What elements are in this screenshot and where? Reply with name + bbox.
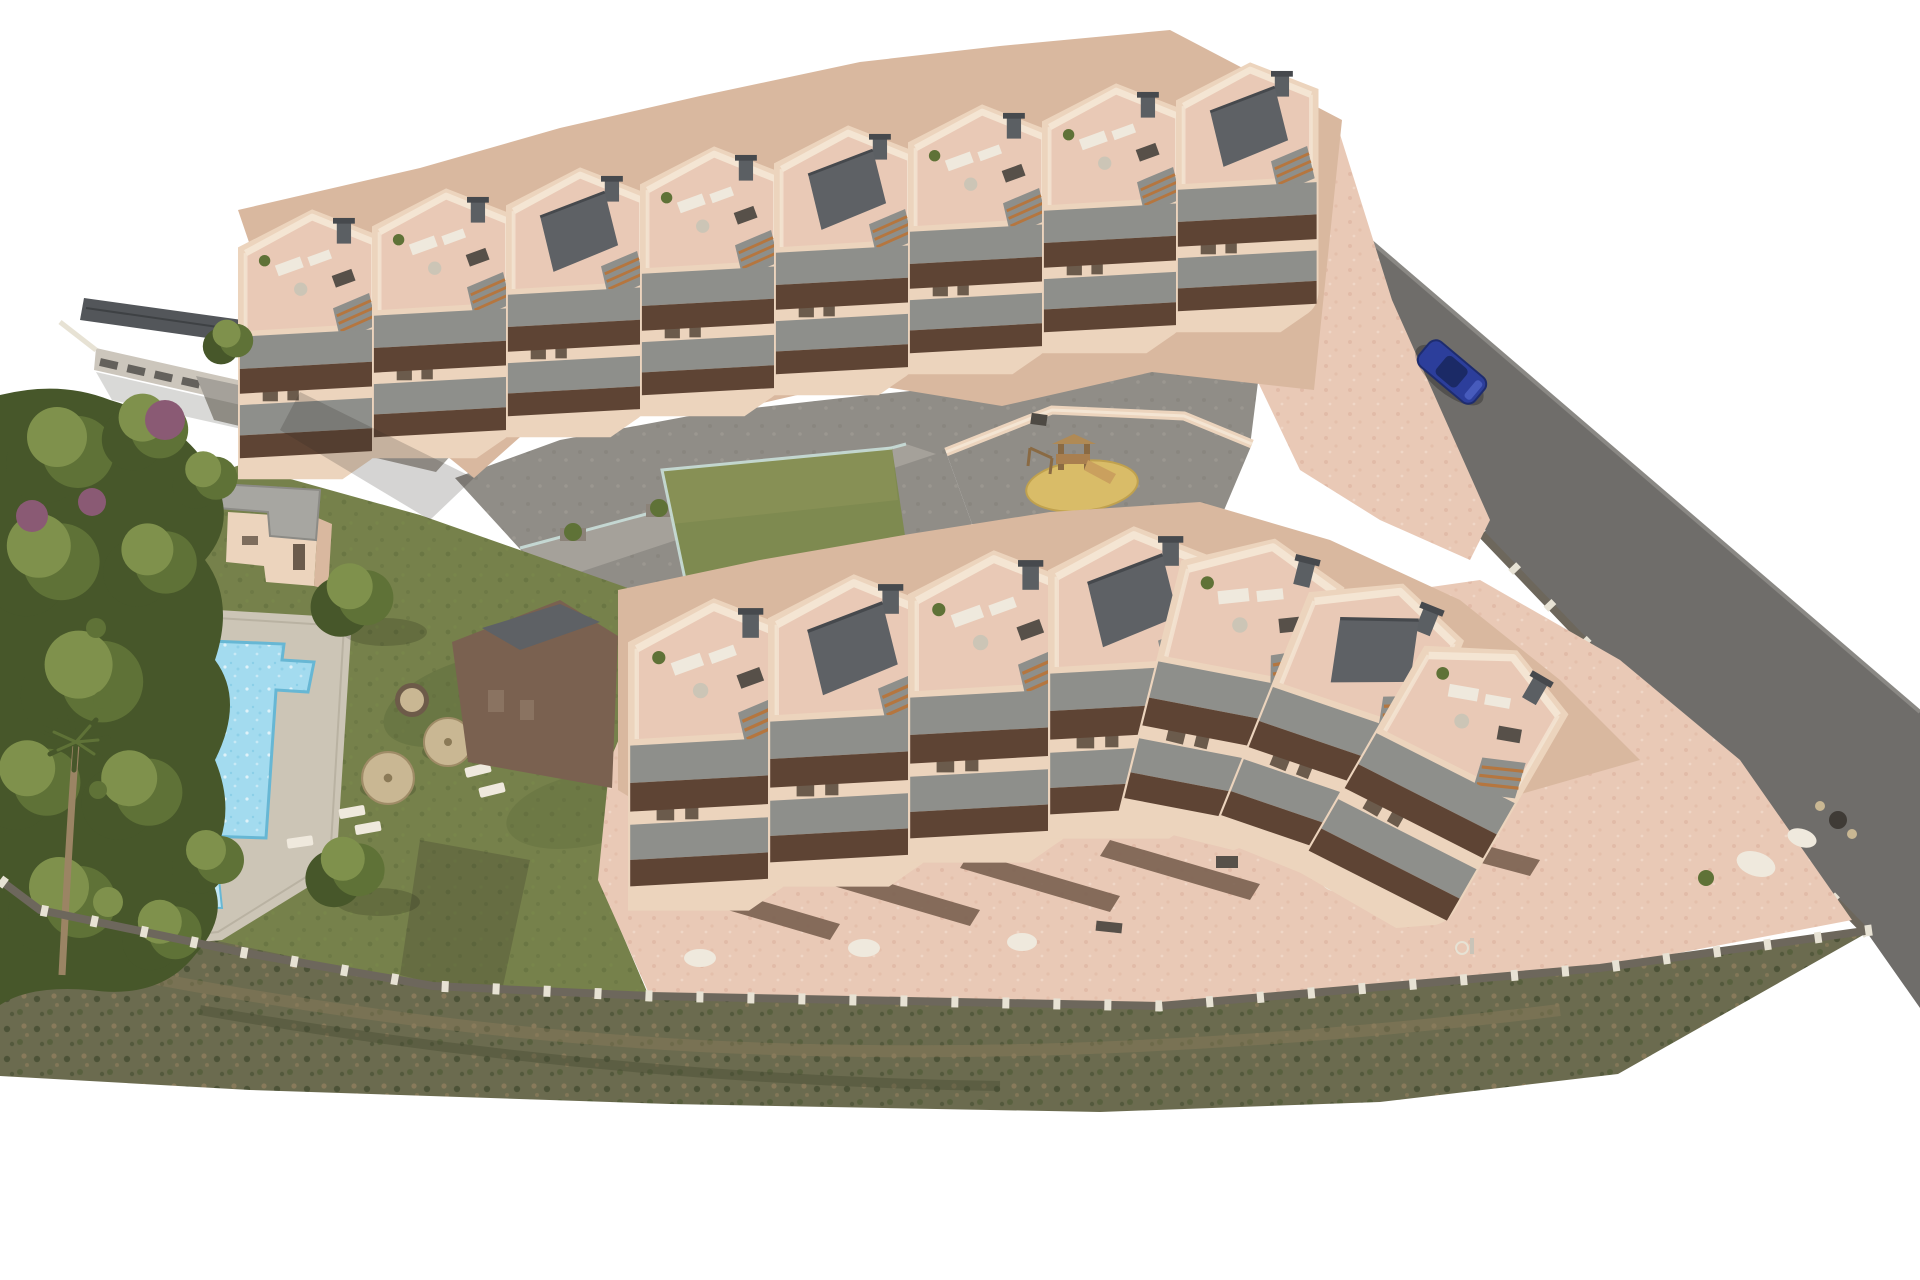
apartment-module xyxy=(506,167,649,437)
apartment-module xyxy=(640,146,783,416)
apartment-module xyxy=(908,104,1051,374)
aerial-render-canvas xyxy=(0,0,1920,1280)
apartment-module xyxy=(774,125,917,395)
apartment-module xyxy=(372,188,515,458)
apartment-module xyxy=(1042,83,1185,353)
apartment-module xyxy=(1176,62,1319,332)
playground-sign xyxy=(1030,413,1047,426)
